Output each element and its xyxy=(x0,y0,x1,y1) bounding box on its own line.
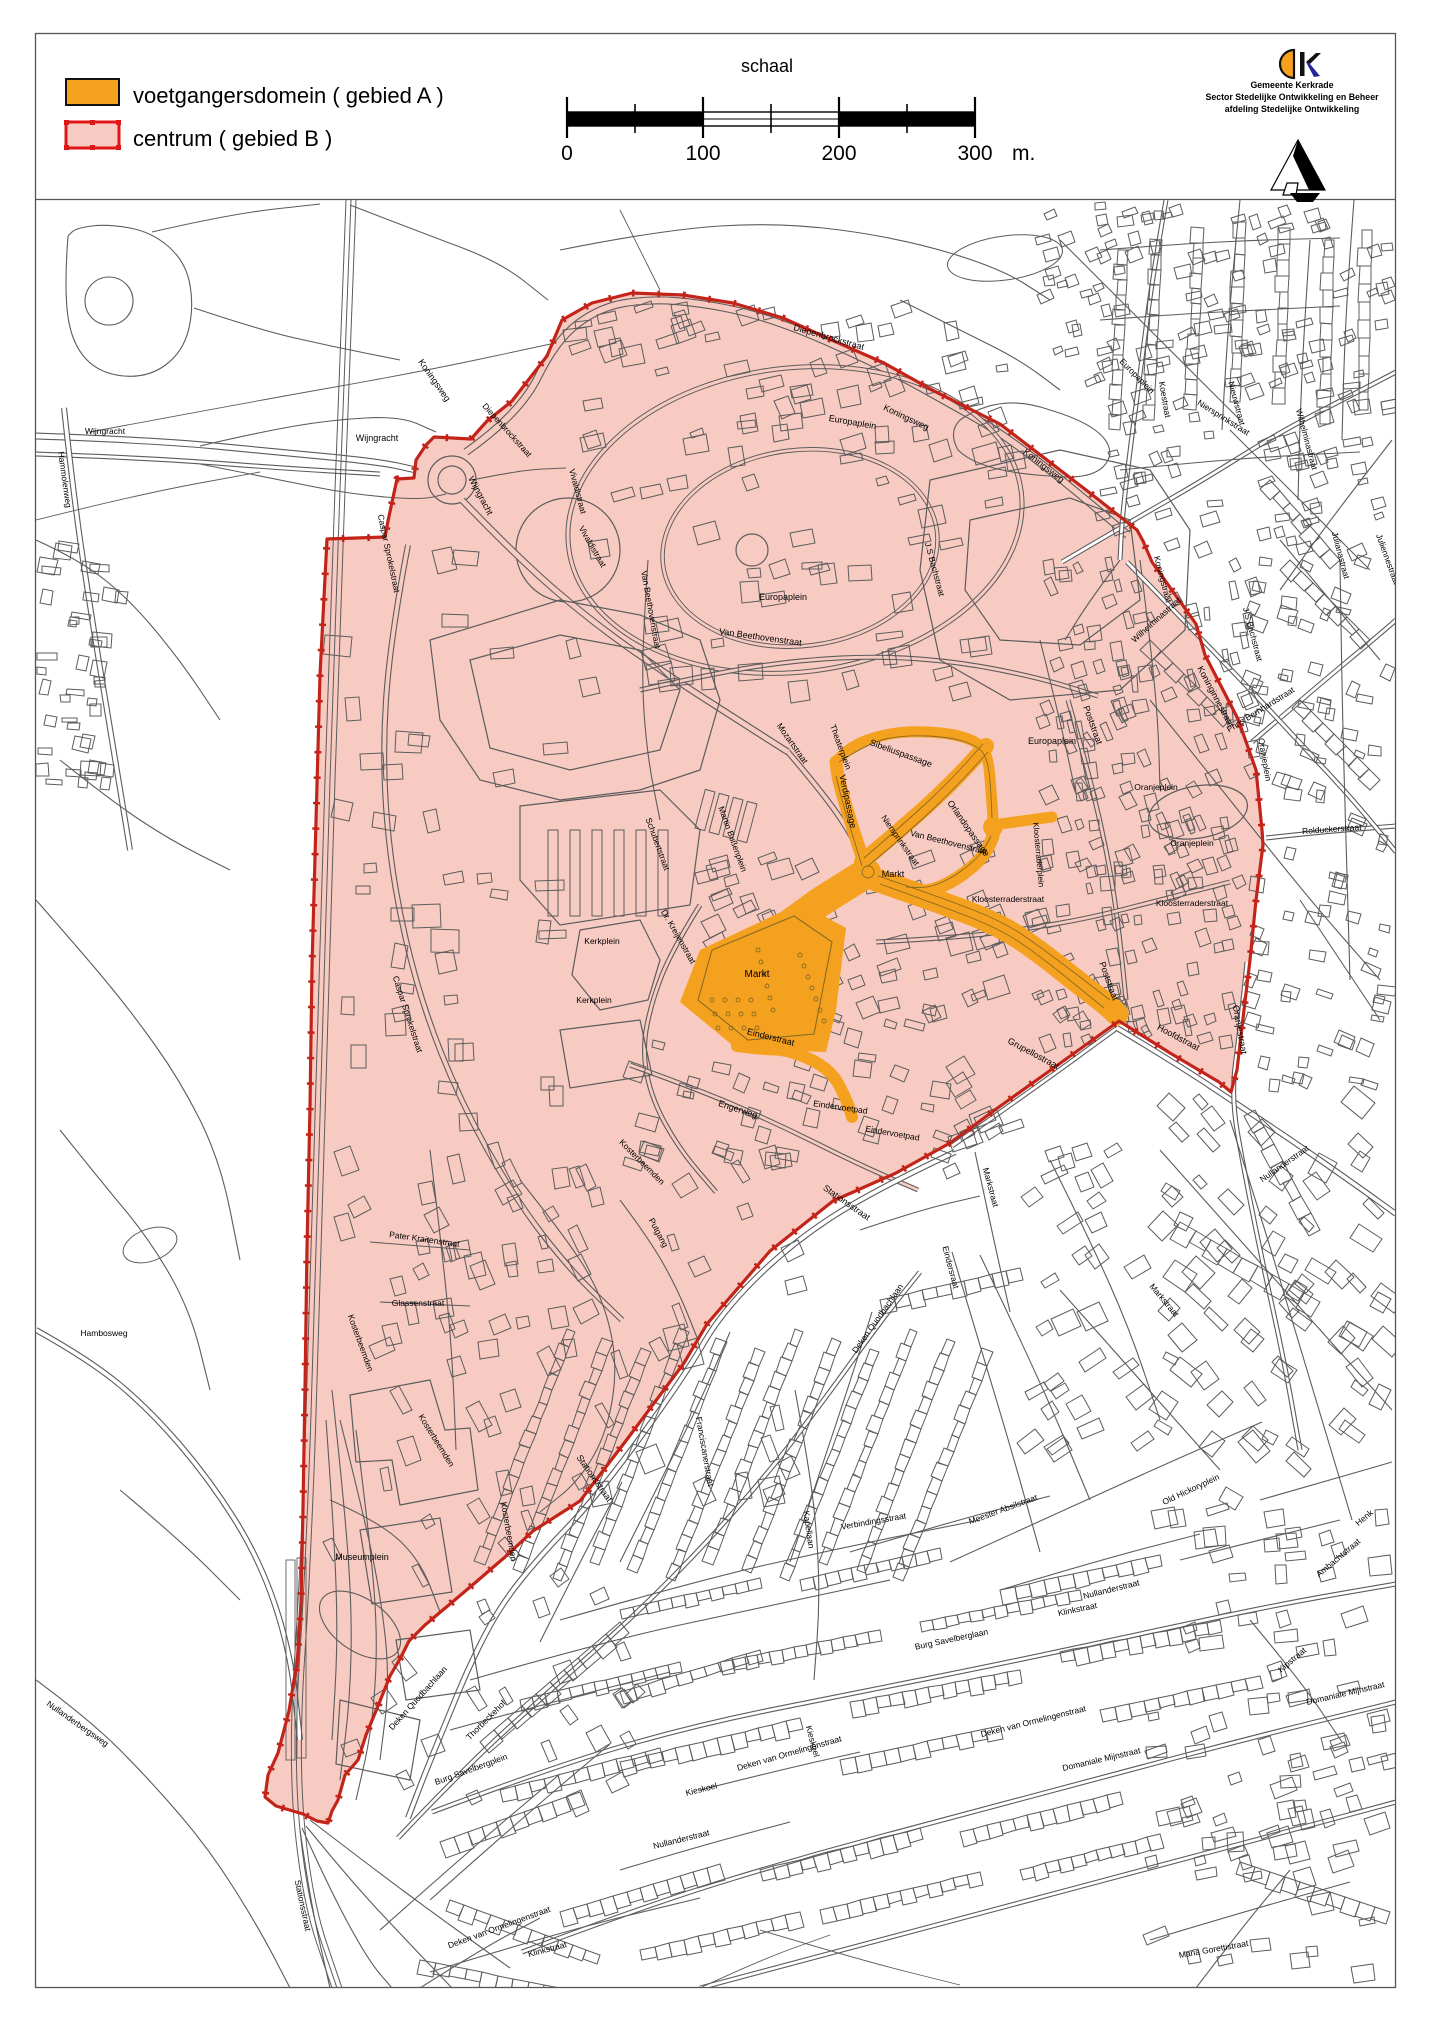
svg-text:Museumplein: Museumplein xyxy=(335,1552,389,1562)
svg-text:Sector Stedelijke Ontwikkeling: Sector Stedelijke Ontwikkeling en Beheer xyxy=(1205,92,1379,102)
svg-text:0: 0 xyxy=(561,142,573,165)
svg-text:afdeling Stedelijke Ontwikkeli: afdeling Stedelijke Ontwikkeling xyxy=(1225,104,1359,114)
svg-text:centrum ( gebied B ): centrum ( gebied B ) xyxy=(133,126,332,151)
svg-text:Wijngracht: Wijngracht xyxy=(85,426,126,436)
svg-text:Oranjeplein: Oranjeplein xyxy=(1170,838,1214,848)
svg-text:100: 100 xyxy=(685,142,720,165)
svg-text:Kloosterraderstraat: Kloosterraderstraat xyxy=(972,894,1045,904)
svg-text:Markt: Markt xyxy=(882,869,905,879)
svg-text:Markt: Markt xyxy=(745,969,770,980)
svg-text:Oranjeplein: Oranjeplein xyxy=(1134,782,1178,792)
svg-text:m.: m. xyxy=(1012,142,1035,165)
svg-text:Gemeente Kerkrade: Gemeente Kerkrade xyxy=(1250,80,1333,90)
svg-text:Glassenstraat: Glassenstraat xyxy=(392,1298,445,1308)
svg-text:Hambosweg: Hambosweg xyxy=(80,1328,128,1338)
svg-text:Kerkplein: Kerkplein xyxy=(584,936,620,946)
svg-text:Europaplein: Europaplein xyxy=(1028,736,1076,746)
svg-text:voetgangersdomein ( gebied A ): voetgangersdomein ( gebied A ) xyxy=(133,83,444,108)
svg-text:200: 200 xyxy=(821,142,856,165)
svg-text:Kerkplein: Kerkplein xyxy=(576,995,612,1005)
svg-text:300: 300 xyxy=(957,142,992,165)
svg-text:Wijngracht: Wijngracht xyxy=(356,433,399,443)
svg-text:Europaplein: Europaplein xyxy=(759,592,807,602)
svg-text:Kloosterraderstraat: Kloosterraderstraat xyxy=(1156,898,1229,908)
svg-text:schaal: schaal xyxy=(741,56,793,76)
